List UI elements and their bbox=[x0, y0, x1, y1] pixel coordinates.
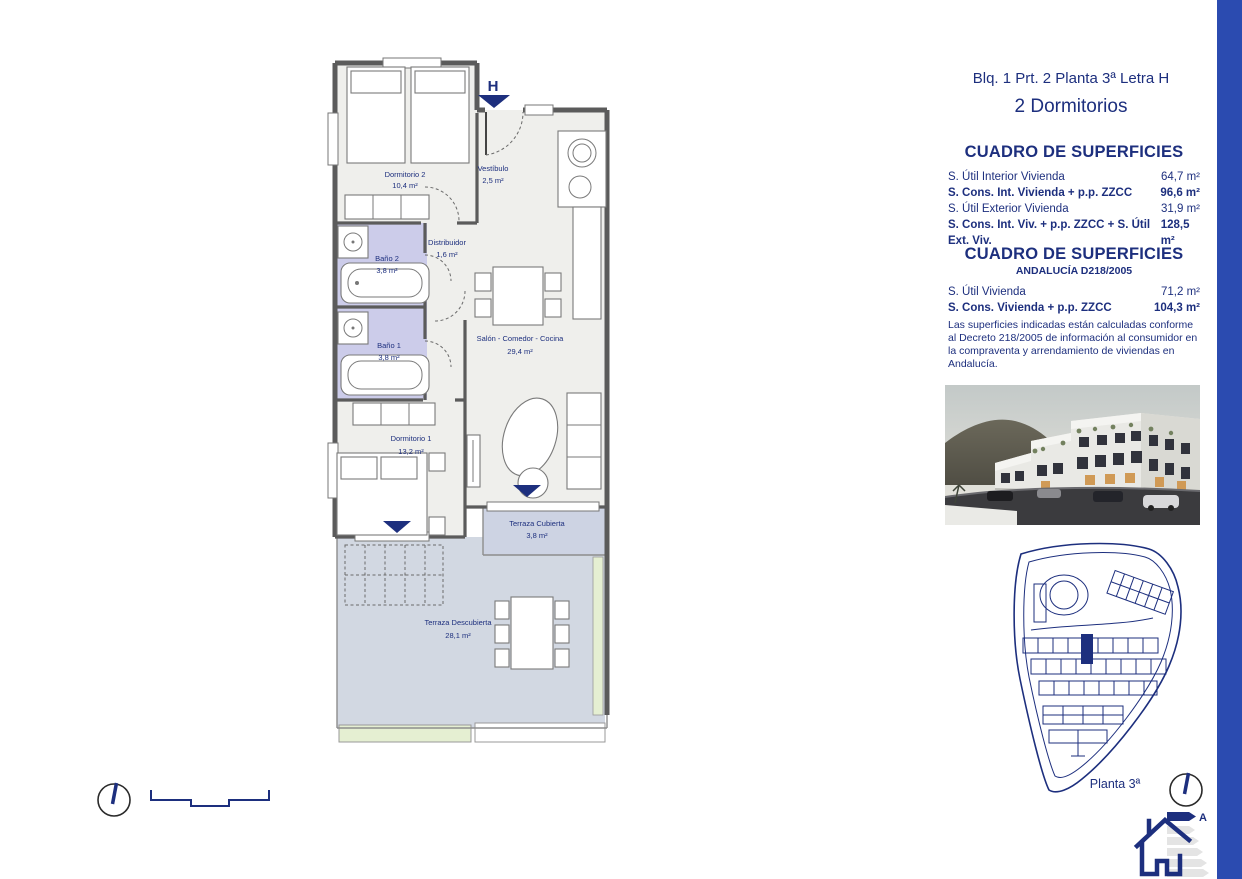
room-label: Baño 1 bbox=[377, 341, 401, 350]
terrace-table bbox=[495, 597, 569, 669]
room-area: 3,8 m² bbox=[376, 266, 398, 275]
north-compass-icon bbox=[92, 778, 136, 822]
room-area: 28,1 m² bbox=[445, 631, 471, 640]
plan-sheet: H Dormitorio 2 10,4 m² Vestíbulo 2,5 m² … bbox=[0, 0, 1242, 879]
planter-strip-right bbox=[593, 557, 603, 715]
room-label: Vestíbulo bbox=[478, 164, 509, 173]
rating-letter: A bbox=[1199, 812, 1207, 824]
site-plan bbox=[985, 538, 1215, 800]
entrance-arrow-icon bbox=[478, 95, 510, 108]
table-row: S. Útil Interior Vivienda 64,7 m² bbox=[948, 169, 1200, 185]
floor-plan: H Dormitorio 2 10,4 m² Vestíbulo 2,5 m² … bbox=[325, 55, 625, 755]
room-area: 29,4 m² bbox=[507, 347, 533, 356]
room-label: Dormitorio 2 bbox=[385, 170, 426, 179]
terrace-sliding-door bbox=[487, 502, 599, 511]
room-label: Terraza Descubierta bbox=[424, 618, 492, 627]
room-area: 1,6 m² bbox=[436, 250, 458, 259]
table-title: CUADRO DE SUPERFICIES bbox=[948, 143, 1200, 162]
room-label: Salón - Comedor - Cocina bbox=[477, 334, 565, 343]
rating-arrow bbox=[1167, 812, 1196, 821]
room-label: Distribuidor bbox=[428, 238, 466, 247]
highlighted-unit bbox=[1081, 634, 1093, 664]
legal-note: Las superficies indicadas están calculad… bbox=[948, 319, 1200, 371]
table-title: CUADRO DE SUPERFICIES bbox=[948, 245, 1200, 264]
accent-band bbox=[1217, 0, 1242, 879]
energy-bars bbox=[1167, 826, 1209, 877]
bedrooms-subtitle: 2 Dormitorios bbox=[938, 96, 1204, 118]
room-label: Terraza Cubierta bbox=[509, 519, 565, 528]
sheet-header: Blq. 1 Prt. 2 Planta 3ª Letra H 2 Dormit… bbox=[938, 70, 1204, 118]
table-row: S. Cons. Int. Vivienda + p.p. ZZCC 96,6 … bbox=[948, 185, 1200, 201]
surfaces-table-1: CUADRO DE SUPERFICIES S. Útil Interior V… bbox=[948, 143, 1200, 249]
room-area: 3,8 m² bbox=[378, 353, 400, 362]
room-label: Dormitorio 1 bbox=[391, 434, 432, 443]
table-row: S. Útil Vivienda 71,2 m² bbox=[948, 284, 1200, 300]
room-label: Baño 2 bbox=[375, 254, 399, 263]
surfaces-table-2: CUADRO DE SUPERFICIES ANDALUCÍA D218/200… bbox=[948, 245, 1200, 371]
floor-label: Planta 3ª bbox=[1080, 777, 1150, 791]
unit-title: Blq. 1 Prt. 2 Planta 3ª Letra H bbox=[938, 70, 1204, 87]
site-buildings bbox=[1023, 571, 1173, 756]
building-render-image bbox=[945, 385, 1200, 525]
room-area: 10,4 m² bbox=[392, 181, 418, 190]
room-area: 2,5 m² bbox=[482, 176, 504, 185]
table-row: S. Útil Exterior Vivienda 31,9 m² bbox=[948, 201, 1200, 217]
table-subtitle: ANDALUCÍA D218/2005 bbox=[948, 265, 1200, 277]
entrance-label: H bbox=[488, 78, 499, 95]
room-area: 13,2 m² bbox=[398, 447, 424, 456]
energy-rating-icon: A bbox=[1127, 806, 1215, 878]
table-row: S. Cons. Vivienda + p.p. ZZCC 104,3 m² bbox=[948, 300, 1200, 316]
sofa bbox=[567, 393, 601, 489]
scale-bar bbox=[146, 786, 276, 812]
room-area: 3,8 m² bbox=[526, 531, 548, 540]
